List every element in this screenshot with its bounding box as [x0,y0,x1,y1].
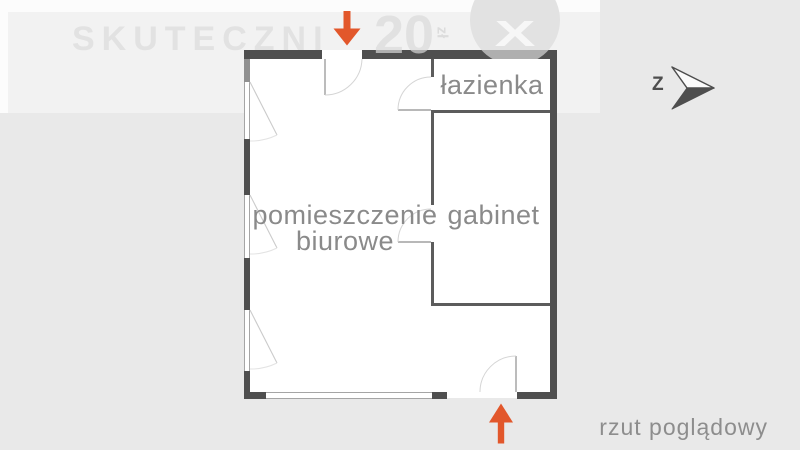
north-arrow-upper-wing [672,67,714,88]
entrance-arrow-top-head [334,29,361,46]
north-letter: Z [652,74,664,96]
room-label-cabinet: gabinet [437,202,550,228]
window-swing-leaf-1 [250,82,277,135]
room-label-office: pomieszczenie biurowe [245,202,445,254]
window-swing-leaf-3 [250,310,277,363]
floor-plan-image: SKUTECZNI 20 zł X SKUTECZNI 20 zł [0,0,800,450]
room-label-office-line1: pomieszczenie [245,202,445,228]
plan-caption: rzut poglądowy [563,414,768,441]
room-label-office-line2: biurowe [245,228,445,254]
entrance-arrow-top-shaft [344,11,351,30]
north-arrow-lower-wing [672,88,714,109]
room-label-bathroom: łazienka [434,72,550,98]
window-swing-arc-3 [250,363,277,369]
door-swing-top-entrance [325,59,362,95]
entrance-arrow-bottom-head [489,404,513,423]
window-swing-arc-1 [250,135,277,141]
door-swing-bottom-entrance [480,356,516,392]
entrance-arrow-bottom-shaft [498,421,504,444]
door-swing-bathroom [398,77,431,110]
